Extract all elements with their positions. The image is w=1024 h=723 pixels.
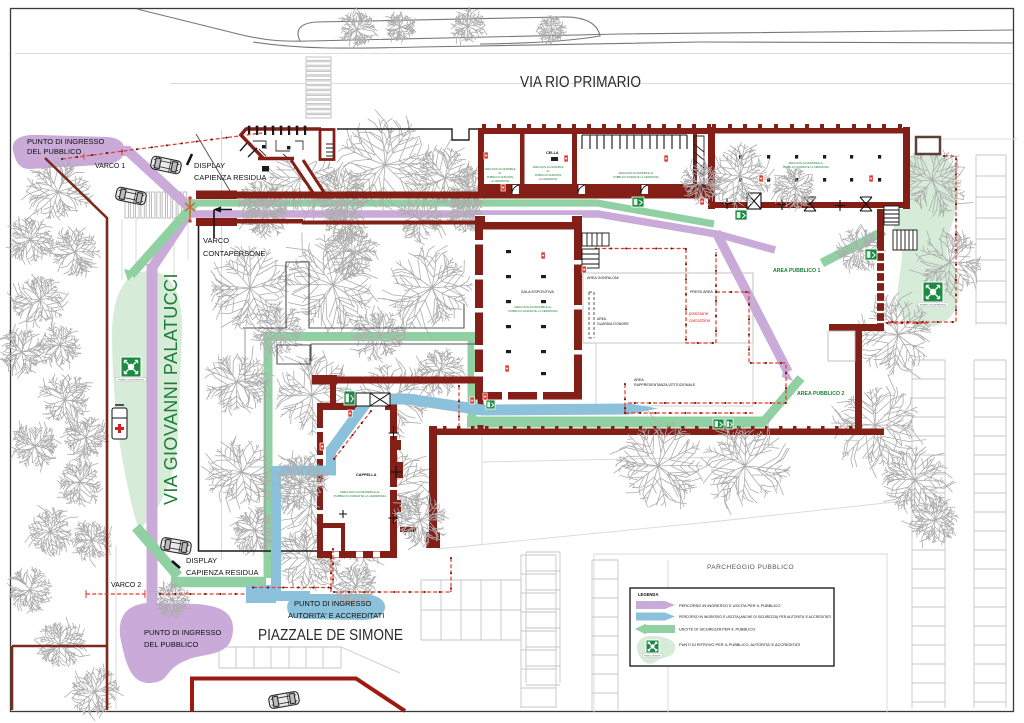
svg-text:PUNTI DI RITROVO PER IL PUBBL: PUNTI DI RITROVO PER IL PUBBLICO, AUTORI… — [679, 642, 800, 647]
svg-text:VIA RIO PRIMARIO: VIA RIO PRIMARIO — [520, 74, 641, 91]
svg-text:AUTORITA' E ACCREDITATI: AUTORITA' E ACCREDITATI — [288, 611, 384, 620]
svg-text:DEL PUBBLICO: DEL PUBBLICO — [144, 640, 198, 649]
svg-text:DISPLAY: DISPLAY — [194, 161, 225, 170]
svg-text:PRESS AREA: PRESS AREA — [690, 290, 713, 294]
svg-text:PUBBLICO DURANTE: PUBBLICO DURANTE — [487, 175, 514, 179]
svg-text:GUARDIA D'ONORE: GUARDIA D'ONORE — [597, 322, 629, 326]
svg-text:AL: AL — [498, 171, 502, 175]
svg-text:posizione: posizione — [689, 311, 709, 316]
svg-text:USCITE DI SICUREZZA PER IL PU: USCITE DI SICUREZZA PER IL PUBBLICO — [679, 627, 755, 632]
svg-text:AREA: AREA — [597, 317, 607, 321]
svg-text:RAPPRESENTANZA ISTITUZIONALE: RAPPRESENTANZA ISTITUZIONALE — [634, 383, 696, 387]
svg-text:VARCO 1: VARCO 1 — [95, 163, 125, 170]
svg-text:PUBBLICO DURANTE LA CERIMONIA: PUBBLICO DURANTE LA CERIMONIA — [783, 165, 829, 169]
svg-text:LA CERIMONIA: LA CERIMONIA — [539, 177, 558, 181]
svg-text:VIA GIOVANNI PALATUCCI: VIA GIOVANNI PALATUCCI — [161, 273, 181, 505]
svg-text:CAPIENZA RESIDUA: CAPIENZA RESIDUA — [186, 568, 259, 577]
svg-text:LA CERIMONIA: LA CERIMONIA — [491, 179, 510, 183]
svg-text:AREA NON ACCESSIBILE AL: AREA NON ACCESSIBILE AL — [789, 161, 824, 165]
svg-text:PUNTO DI INGRESSO: PUNTO DI INGRESSO — [27, 137, 105, 146]
svg-text:AL: AL — [546, 169, 550, 173]
svg-text:LEGENDA: LEGENDA — [638, 592, 658, 597]
svg-text:PIAZZALE DE SIMONE: PIAZZALE DE SIMONE — [258, 627, 403, 644]
svg-text:PUNTO DI RITROVO: PUNTO DI RITROVO — [644, 656, 661, 658]
svg-text:SALA ESPOSITIVA: SALA ESPOSITIVA — [521, 290, 554, 294]
svg-text:CELLA: CELLA — [546, 151, 559, 155]
svg-text:AREA NON ACCESSIBILE: AREA NON ACCESSIBILE — [533, 165, 564, 169]
svg-text:PUBBLICO DURANTE LA CERIMONIA: PUBBLICO DURANTE LA CERIMONIA — [334, 494, 387, 498]
svg-text:PUNTO DI RITROVO: PUNTO DI RITROVO — [920, 305, 946, 307]
svg-text:VARCO 2: VARCO 2 — [111, 582, 141, 589]
svg-text:CAPPELLA: CAPPELLA — [356, 473, 377, 477]
svg-text:PUBBLICO DURANTE: PUBBLICO DURANTE — [535, 173, 562, 177]
svg-text:PERCORSO IN INGRESSO E USCITA: PERCORSO IN INGRESSO E USCITA (ANCHE DI … — [679, 614, 831, 619]
svg-text:PUNTO DI RITROVO: PUNTO DI RITROVO — [118, 380, 144, 382]
svg-text:DEL PUBBLICO: DEL PUBBLICO — [27, 147, 81, 156]
svg-text:CONTAPERSONE: CONTAPERSONE — [203, 249, 265, 258]
svg-text:AREA PUBBLICO 1: AREA PUBBLICO 1 — [773, 268, 820, 274]
svg-text:PERCORSO IN INGRESSO E USCITA: PERCORSO IN INGRESSO E USCITA PER IL PUB… — [679, 603, 780, 608]
svg-text:PUNTO DI INGRESSO: PUNTO DI INGRESSO — [144, 628, 222, 637]
svg-text:carrozzine: carrozzine — [689, 318, 711, 323]
svg-text:AREA GONFALONI: AREA GONFALONI — [587, 276, 619, 280]
svg-text:AREA PUBBLICO 2: AREA PUBBLICO 2 — [797, 391, 844, 397]
svg-text:VARCO: VARCO — [203, 236, 229, 245]
svg-text:AREA NON ACCESSIBILE: AREA NON ACCESSIBILE — [485, 167, 516, 171]
svg-text:AREA NON ACCESSIBILE AL: AREA NON ACCESSIBILE AL — [619, 171, 654, 175]
svg-text:DISPLAY: DISPLAY — [186, 556, 217, 565]
svg-text:PUNTO DI INGRESSO: PUNTO DI INGRESSO — [294, 599, 372, 608]
svg-text:AREA: AREA — [634, 378, 644, 382]
svg-text:CAPIENZA RESIDUA: CAPIENZA RESIDUA — [194, 173, 267, 182]
svg-text:PUBBLICO DURANTE LA CERIMONIA: PUBBLICO DURANTE LA CERIMONIA — [508, 309, 557, 313]
svg-text:PARCHEGGIO PUBBLICO: PARCHEGGIO PUBBLICO — [707, 564, 794, 571]
svg-text:PUBBLICO DURANTE LA CERIMONIA: PUBBLICO DURANTE LA CERIMONIA — [613, 175, 659, 179]
